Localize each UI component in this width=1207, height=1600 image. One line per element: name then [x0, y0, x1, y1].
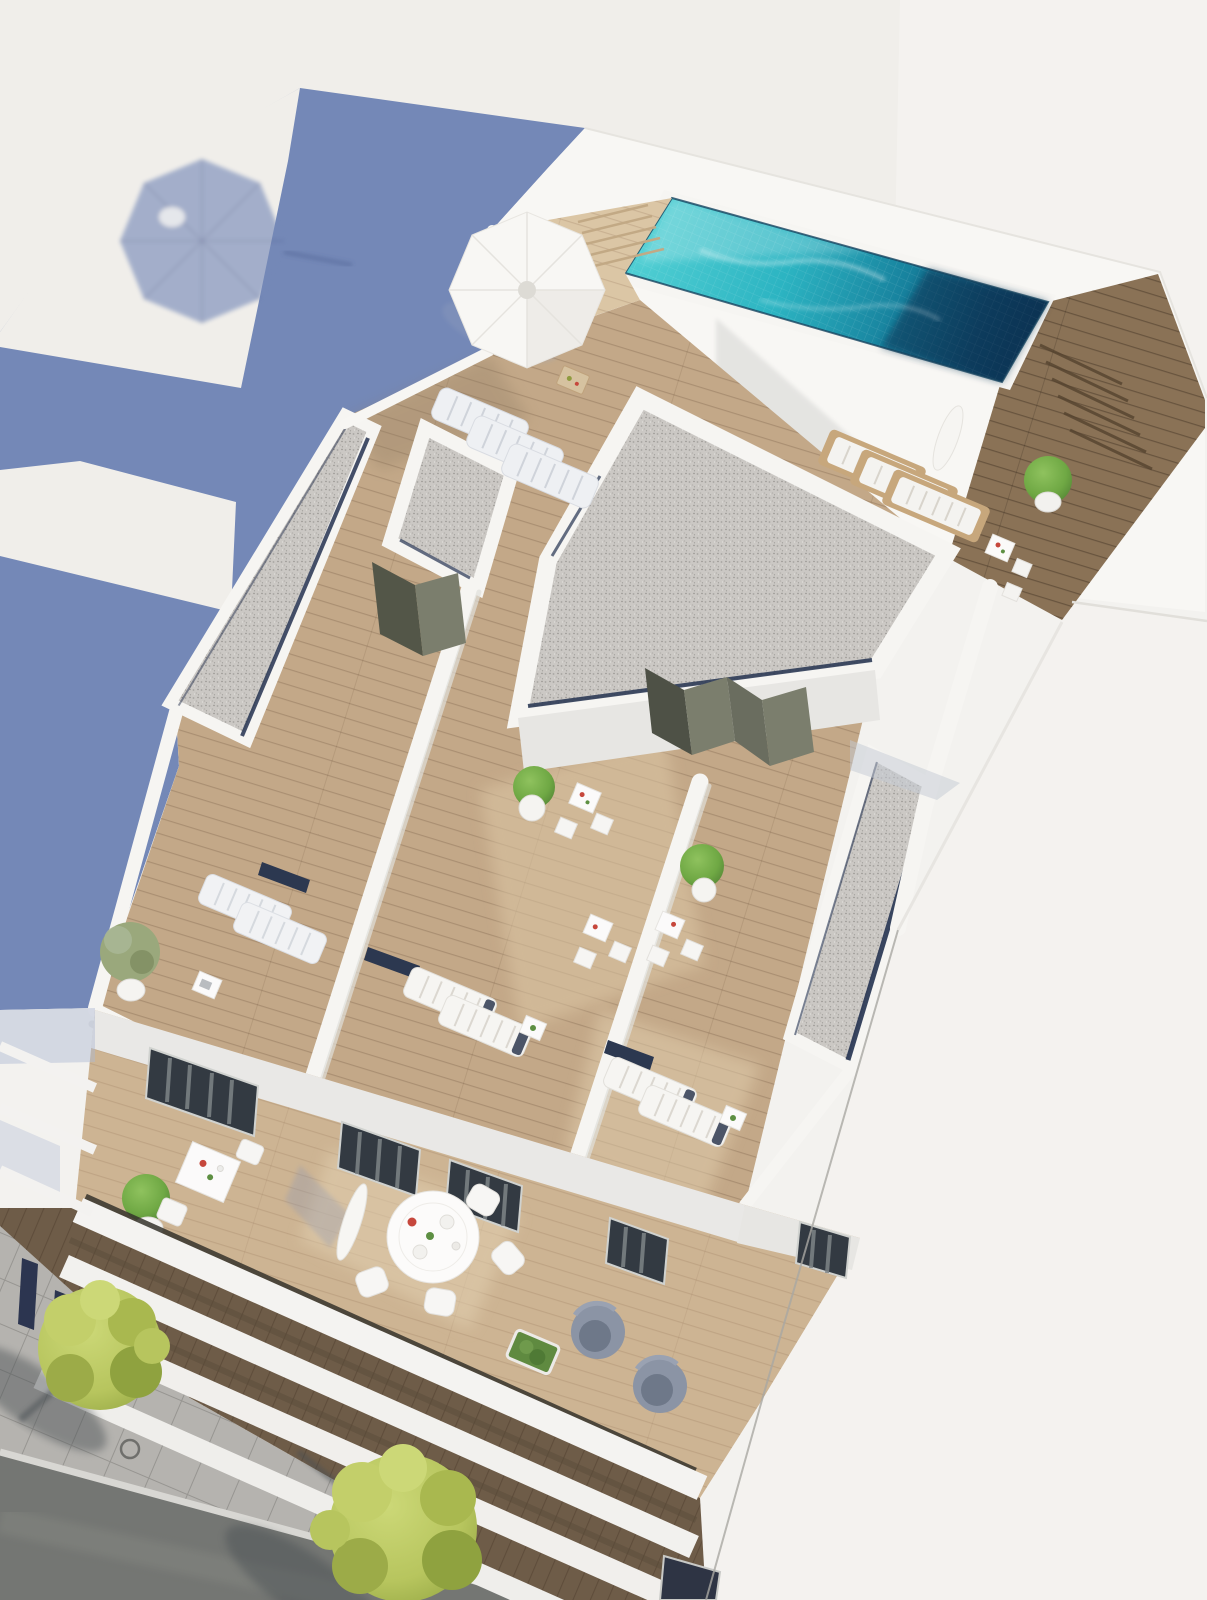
olive-tree-shade — [130, 950, 154, 974]
plant-pot — [117, 979, 145, 1001]
table-flowers — [408, 1218, 417, 1227]
render-canvas — [0, 0, 1207, 1600]
plate — [413, 1245, 427, 1259]
roof-door — [415, 573, 466, 656]
cup — [452, 1242, 460, 1250]
roof-door — [762, 687, 814, 766]
scene-svg — [0, 0, 1207, 1600]
plant-pot — [1035, 492, 1061, 512]
canopy-hub — [518, 281, 536, 299]
table-herb — [426, 1232, 434, 1240]
olive-tree-highlight — [104, 926, 132, 954]
parasol-shadow — [120, 159, 284, 323]
roof-door — [684, 677, 735, 755]
plate — [440, 1215, 454, 1229]
